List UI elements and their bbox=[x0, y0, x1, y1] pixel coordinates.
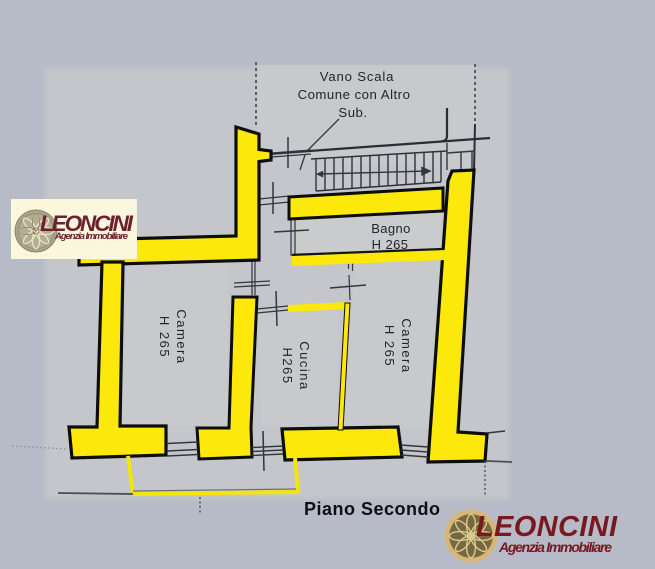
svg-text:Camera: Camera bbox=[174, 309, 189, 364]
svg-text:Sub.: Sub. bbox=[338, 105, 367, 120]
svg-text:H 265: H 265 bbox=[157, 316, 172, 358]
svg-text:Bagno: Bagno bbox=[371, 221, 411, 236]
svg-text:Camera: Camera bbox=[399, 318, 414, 373]
svg-text:H 265: H 265 bbox=[372, 237, 409, 252]
svg-text:Agenzia Immobiliare: Agenzia Immobiliare bbox=[54, 231, 129, 242]
svg-text:Piano Secondo: Piano Secondo bbox=[304, 499, 441, 519]
svg-text:Cucina: Cucina bbox=[297, 341, 312, 390]
svg-text:Vano Scala: Vano Scala bbox=[320, 69, 394, 84]
svg-text:H 265: H 265 bbox=[382, 325, 397, 367]
svg-text:Comune con Altro: Comune con Altro bbox=[298, 87, 411, 102]
svg-text:H265: H265 bbox=[280, 347, 295, 384]
svg-text:Agenzia Immobiliare: Agenzia Immobiliare bbox=[498, 539, 612, 555]
